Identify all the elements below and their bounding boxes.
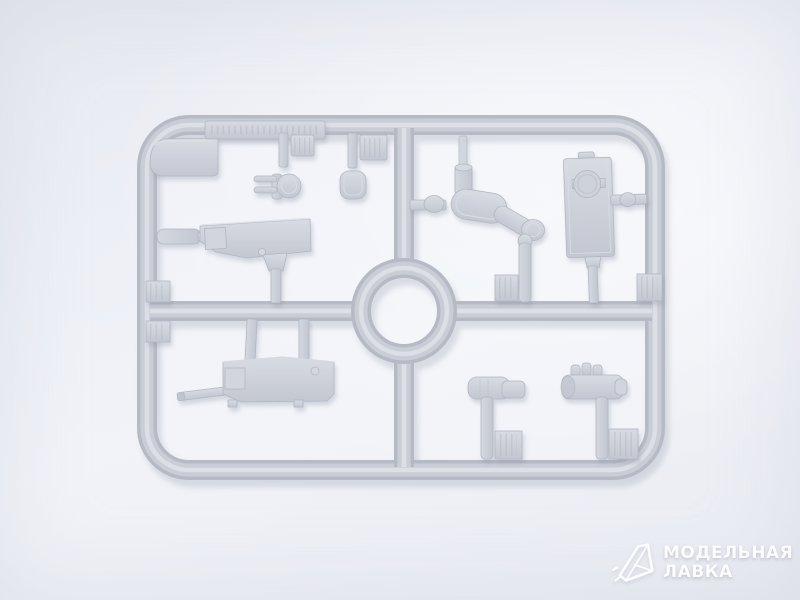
watermark: МОДЕЛЬНАЯ ЛАВКА xyxy=(612,540,793,586)
photo-canvas: МОДЕЛЬНАЯ ЛАВКА xyxy=(0,0,800,600)
ribbed-tab xyxy=(146,321,170,342)
ribbed-tab xyxy=(637,274,662,301)
sprue-photo xyxy=(0,0,800,600)
watermark-line1: МОДЕЛЬНАЯ xyxy=(663,544,793,563)
ribbed-tab xyxy=(495,275,518,301)
watermark-text: МОДЕЛЬНАЯ ЛАВКА xyxy=(663,544,793,582)
ribbed-tab xyxy=(146,281,170,302)
corner-wedge-plate xyxy=(150,138,218,176)
crystal-gem-icon xyxy=(612,540,654,586)
watermark-line2: ЛАВКА xyxy=(663,563,793,582)
